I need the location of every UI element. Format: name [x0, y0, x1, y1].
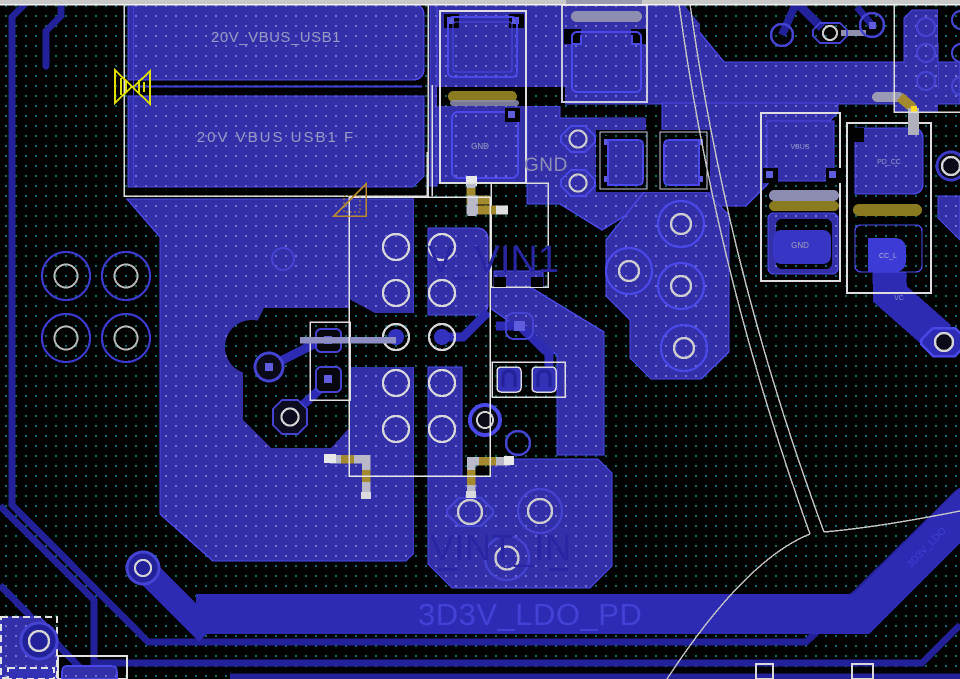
svg-text:3D3V_LDO_PD: 3D3V_LDO_PD — [418, 597, 642, 632]
svg-text:GND: GND — [791, 241, 809, 250]
svg-text:20V VBUS USB1 F: 20V VBUS USB1 F — [197, 129, 355, 146]
svg-text:VINT_IN: VINT_IN — [430, 527, 572, 568]
svg-text:VC: VC — [894, 295, 904, 302]
svg-text:20V_VBUS_USB1: 20V_VBUS_USB1 — [211, 29, 341, 46]
svg-text:VBUS: VBUS — [790, 144, 809, 151]
svg-text:GND: GND — [524, 155, 568, 176]
svg-text:PD_CC: PD_CC — [877, 159, 901, 166]
svg-text:GND: GND — [471, 142, 489, 151]
svg-text:CC_L: CC_L — [879, 253, 897, 260]
svg-text:V_VIN1: V_VIN1 — [428, 239, 559, 281]
